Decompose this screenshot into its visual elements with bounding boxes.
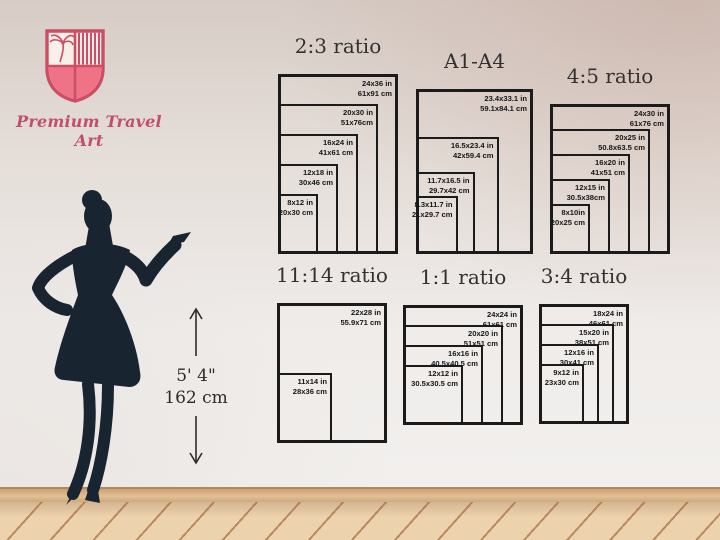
scene: Premium Travel Art 5' 4" 162 cm — [0, 0, 720, 540]
height-feet: 5' 4" — [161, 366, 231, 386]
size-label: 12x15 in30.5x38cm — [567, 183, 605, 203]
chart-title: 2:3 ratio — [295, 34, 382, 58]
size-label: 16.5x23.4 in42x59.4 cm — [451, 141, 494, 161]
size-rect-8x10in: 8x10in20x25 cm — [550, 204, 590, 254]
chart-title: A1-A4 — [444, 49, 505, 73]
measure-arrows-icon — [184, 306, 208, 466]
size-label: 24x36 in61x91 cm — [358, 79, 392, 99]
size-label: 12x12 in30.5x30.5 cm — [411, 369, 458, 389]
size-chart-2-3: 2:3 ratio 24x36 in61x91 cm20x30 in51x76c… — [278, 74, 398, 254]
size-rect-8.3x11.7in: 8.3x11.7 in21x29.7 cm — [416, 196, 458, 255]
size-label: 8.3x11.7 in21x29.7 cm — [412, 200, 453, 220]
chart-box: 18x24 in46x61 cm15x20 in38x51 cm12x16 in… — [539, 304, 629, 424]
chart-title: 1:1 ratio — [420, 265, 507, 289]
size-label: 22x28 in55.9x71 cm — [340, 308, 381, 328]
size-rect-11x14in: 11x14 in28x36 cm — [277, 373, 332, 443]
height-cm: 162 cm — [161, 388, 231, 408]
chart-title: 4:5 ratio — [567, 64, 654, 88]
size-label: 9x12 in23x30 cm — [545, 368, 579, 388]
size-rect-12x12in: 12x12 in30.5x30.5 cm — [403, 365, 463, 425]
chart-box: 24x30 in61x76 cm20x25 in50.8x63.5 cm16x2… — [550, 104, 670, 254]
size-label: 16x24 in41x61 cm — [319, 138, 353, 158]
size-chart-1-1: 1:1 ratio 24x24 in61x61 cm20x20 in51x51 … — [403, 305, 523, 425]
chart-box: 22x28 in55.9x71 cm11x14 in28x36 cm — [277, 303, 387, 443]
chart-box: 24x36 in61x91 cm20x30 in51x76cm16x24 in4… — [278, 74, 398, 254]
shield-crest-icon — [44, 28, 106, 104]
chart-title: 11:14 ratio — [276, 263, 388, 287]
woman-silhouette — [25, 188, 193, 512]
size-label: 11.7x16.5 in29.7x42 cm — [427, 176, 469, 196]
size-label: 16x20 in41x51 cm — [591, 158, 625, 178]
size-label: 8x10in20x25 cm — [551, 208, 585, 228]
size-chart-4-5: 4:5 ratio 24x30 in61x76 cm20x25 in50.8x6… — [550, 104, 670, 254]
chart-box: 23.4x33.1 in59.1x84.1 cm16.5x23.4 in42x5… — [416, 89, 533, 255]
size-label: 20x30 in51x76cm — [341, 108, 373, 128]
size-rect-8x12in: 8x12 in20x30 cm — [278, 194, 318, 254]
size-label: 20x25 in50.8x63.5 cm — [598, 133, 645, 153]
brand-name: Premium Travel Art — [14, 112, 164, 150]
size-chart-3-4: 3:4 ratio 18x24 in46x61 cm15x20 in38x51 … — [539, 304, 629, 424]
size-label: 24x30 in61x76 cm — [630, 109, 664, 129]
chart-title: 3:4 ratio — [541, 264, 628, 288]
size-label: 11x14 in28x36 cm — [293, 377, 327, 397]
size-label: 8x12 in20x30 cm — [279, 198, 313, 218]
chart-box: 24x24 in61x61 cm20x20 in51x51 cm16x16 in… — [403, 305, 523, 425]
size-rect-9x12in: 9x12 in23x30 cm — [539, 364, 584, 424]
size-label: 23.4x33.1 in59.1x84.1 cm — [480, 94, 527, 114]
size-chart-11-14: 11:14 ratio 22x28 in55.9x71 cm11x14 in28… — [277, 303, 387, 443]
size-chart-a1-a4: A1-A4 23.4x33.1 in59.1x84.1 cm16.5x23.4 … — [416, 89, 533, 255]
size-label: 12x18 in30x46 cm — [299, 168, 333, 188]
brand-logo: Premium Travel Art — [14, 28, 164, 150]
